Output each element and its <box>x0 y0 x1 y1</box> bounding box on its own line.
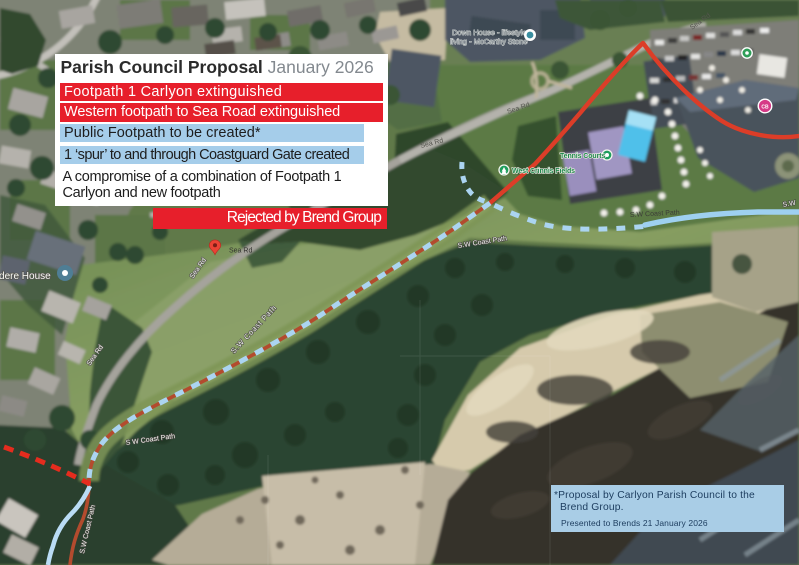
svg-text:CB: CB <box>761 105 769 111</box>
svg-text:Down House - lifestyle: Down House - lifestyle <box>452 28 527 37</box>
svg-text:Tennis Courts: Tennis Courts <box>560 153 605 160</box>
svg-text:living - McCarthy Stone: living - McCarthy Stone <box>450 37 528 46</box>
svg-text:Sea Rd: Sea Rd <box>229 248 252 255</box>
svg-text:Belvedere House: Belvedere House <box>0 271 51 282</box>
svg-text:West Crinnis Fields: West Crinnis Fields <box>512 168 575 175</box>
